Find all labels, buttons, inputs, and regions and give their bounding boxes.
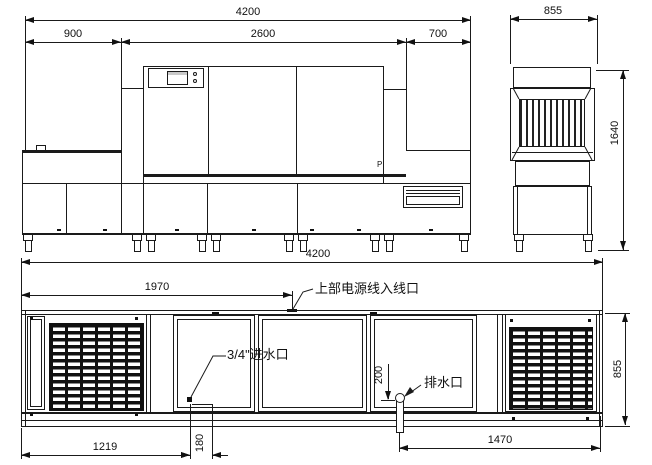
dim-arrowhead xyxy=(406,39,415,45)
screw-dot xyxy=(30,413,33,416)
dim-arrowhead xyxy=(21,292,30,298)
foot-stem xyxy=(213,240,220,252)
dim-arrowhead xyxy=(181,452,190,458)
base-tick xyxy=(252,229,256,231)
inlet-leader-line xyxy=(191,356,226,397)
foot-stem xyxy=(461,240,468,252)
screw-dot xyxy=(512,417,515,420)
drain-leader-arrowhead xyxy=(404,387,414,397)
dim-arrowhead xyxy=(283,292,292,298)
foot-stem xyxy=(134,240,141,252)
base-tick xyxy=(175,229,179,231)
base-tick xyxy=(310,229,314,231)
dim-arrowhead xyxy=(121,39,130,45)
hood-corner-slant xyxy=(585,147,592,160)
foot-stem xyxy=(148,240,155,252)
base-tick xyxy=(357,229,361,231)
dim-arrowhead xyxy=(399,445,408,451)
hood-corner-slant xyxy=(585,88,591,99)
base-tick xyxy=(103,229,107,231)
foot-stem xyxy=(25,240,32,252)
screw-dot xyxy=(586,417,589,420)
base-tick xyxy=(429,229,433,231)
dim-arrowhead xyxy=(620,241,626,250)
dim-arrowhead xyxy=(212,452,221,458)
foot-stem xyxy=(386,240,393,252)
dim-arrowhead xyxy=(591,445,600,451)
dim-arrowhead xyxy=(620,70,626,79)
base-tick xyxy=(57,229,61,231)
dim-arrowhead xyxy=(112,39,121,45)
hood-corner-slant xyxy=(513,88,519,99)
dim-arrowhead xyxy=(397,39,406,45)
hood-corner-slant xyxy=(512,147,519,160)
foot-stem xyxy=(372,240,379,252)
dim-arrowhead xyxy=(25,17,34,23)
dim-arrowhead xyxy=(21,452,30,458)
dim-arrowhead xyxy=(462,17,471,23)
foot-stem xyxy=(286,240,293,252)
dim-arrowhead xyxy=(510,16,519,22)
screw-dot xyxy=(30,317,33,320)
edge-tick xyxy=(370,312,377,314)
screw-dot xyxy=(510,319,513,322)
foot-stem xyxy=(300,240,307,252)
dim-arrowhead xyxy=(25,39,34,45)
dim-arrowhead xyxy=(385,391,391,400)
edge-tick xyxy=(212,312,219,314)
dim-arrowhead xyxy=(462,39,471,45)
screw-dot xyxy=(135,413,138,416)
screw-dot xyxy=(135,317,138,320)
power-leader-line xyxy=(293,289,313,309)
dim-arrowhead xyxy=(622,313,628,322)
dim-arrowhead xyxy=(21,259,30,265)
dim-arrowhead xyxy=(588,16,597,22)
foot-stem xyxy=(516,240,523,252)
foot-stem xyxy=(199,240,206,252)
foot-stem xyxy=(585,240,592,252)
leader-lines-layer xyxy=(0,0,652,465)
dim-arrowhead xyxy=(622,416,628,425)
dishwasher-dimension-drawing: 4200 900 2600 700 P xyxy=(0,0,652,465)
dim-arrowhead xyxy=(594,259,603,265)
screw-dot xyxy=(588,319,591,322)
